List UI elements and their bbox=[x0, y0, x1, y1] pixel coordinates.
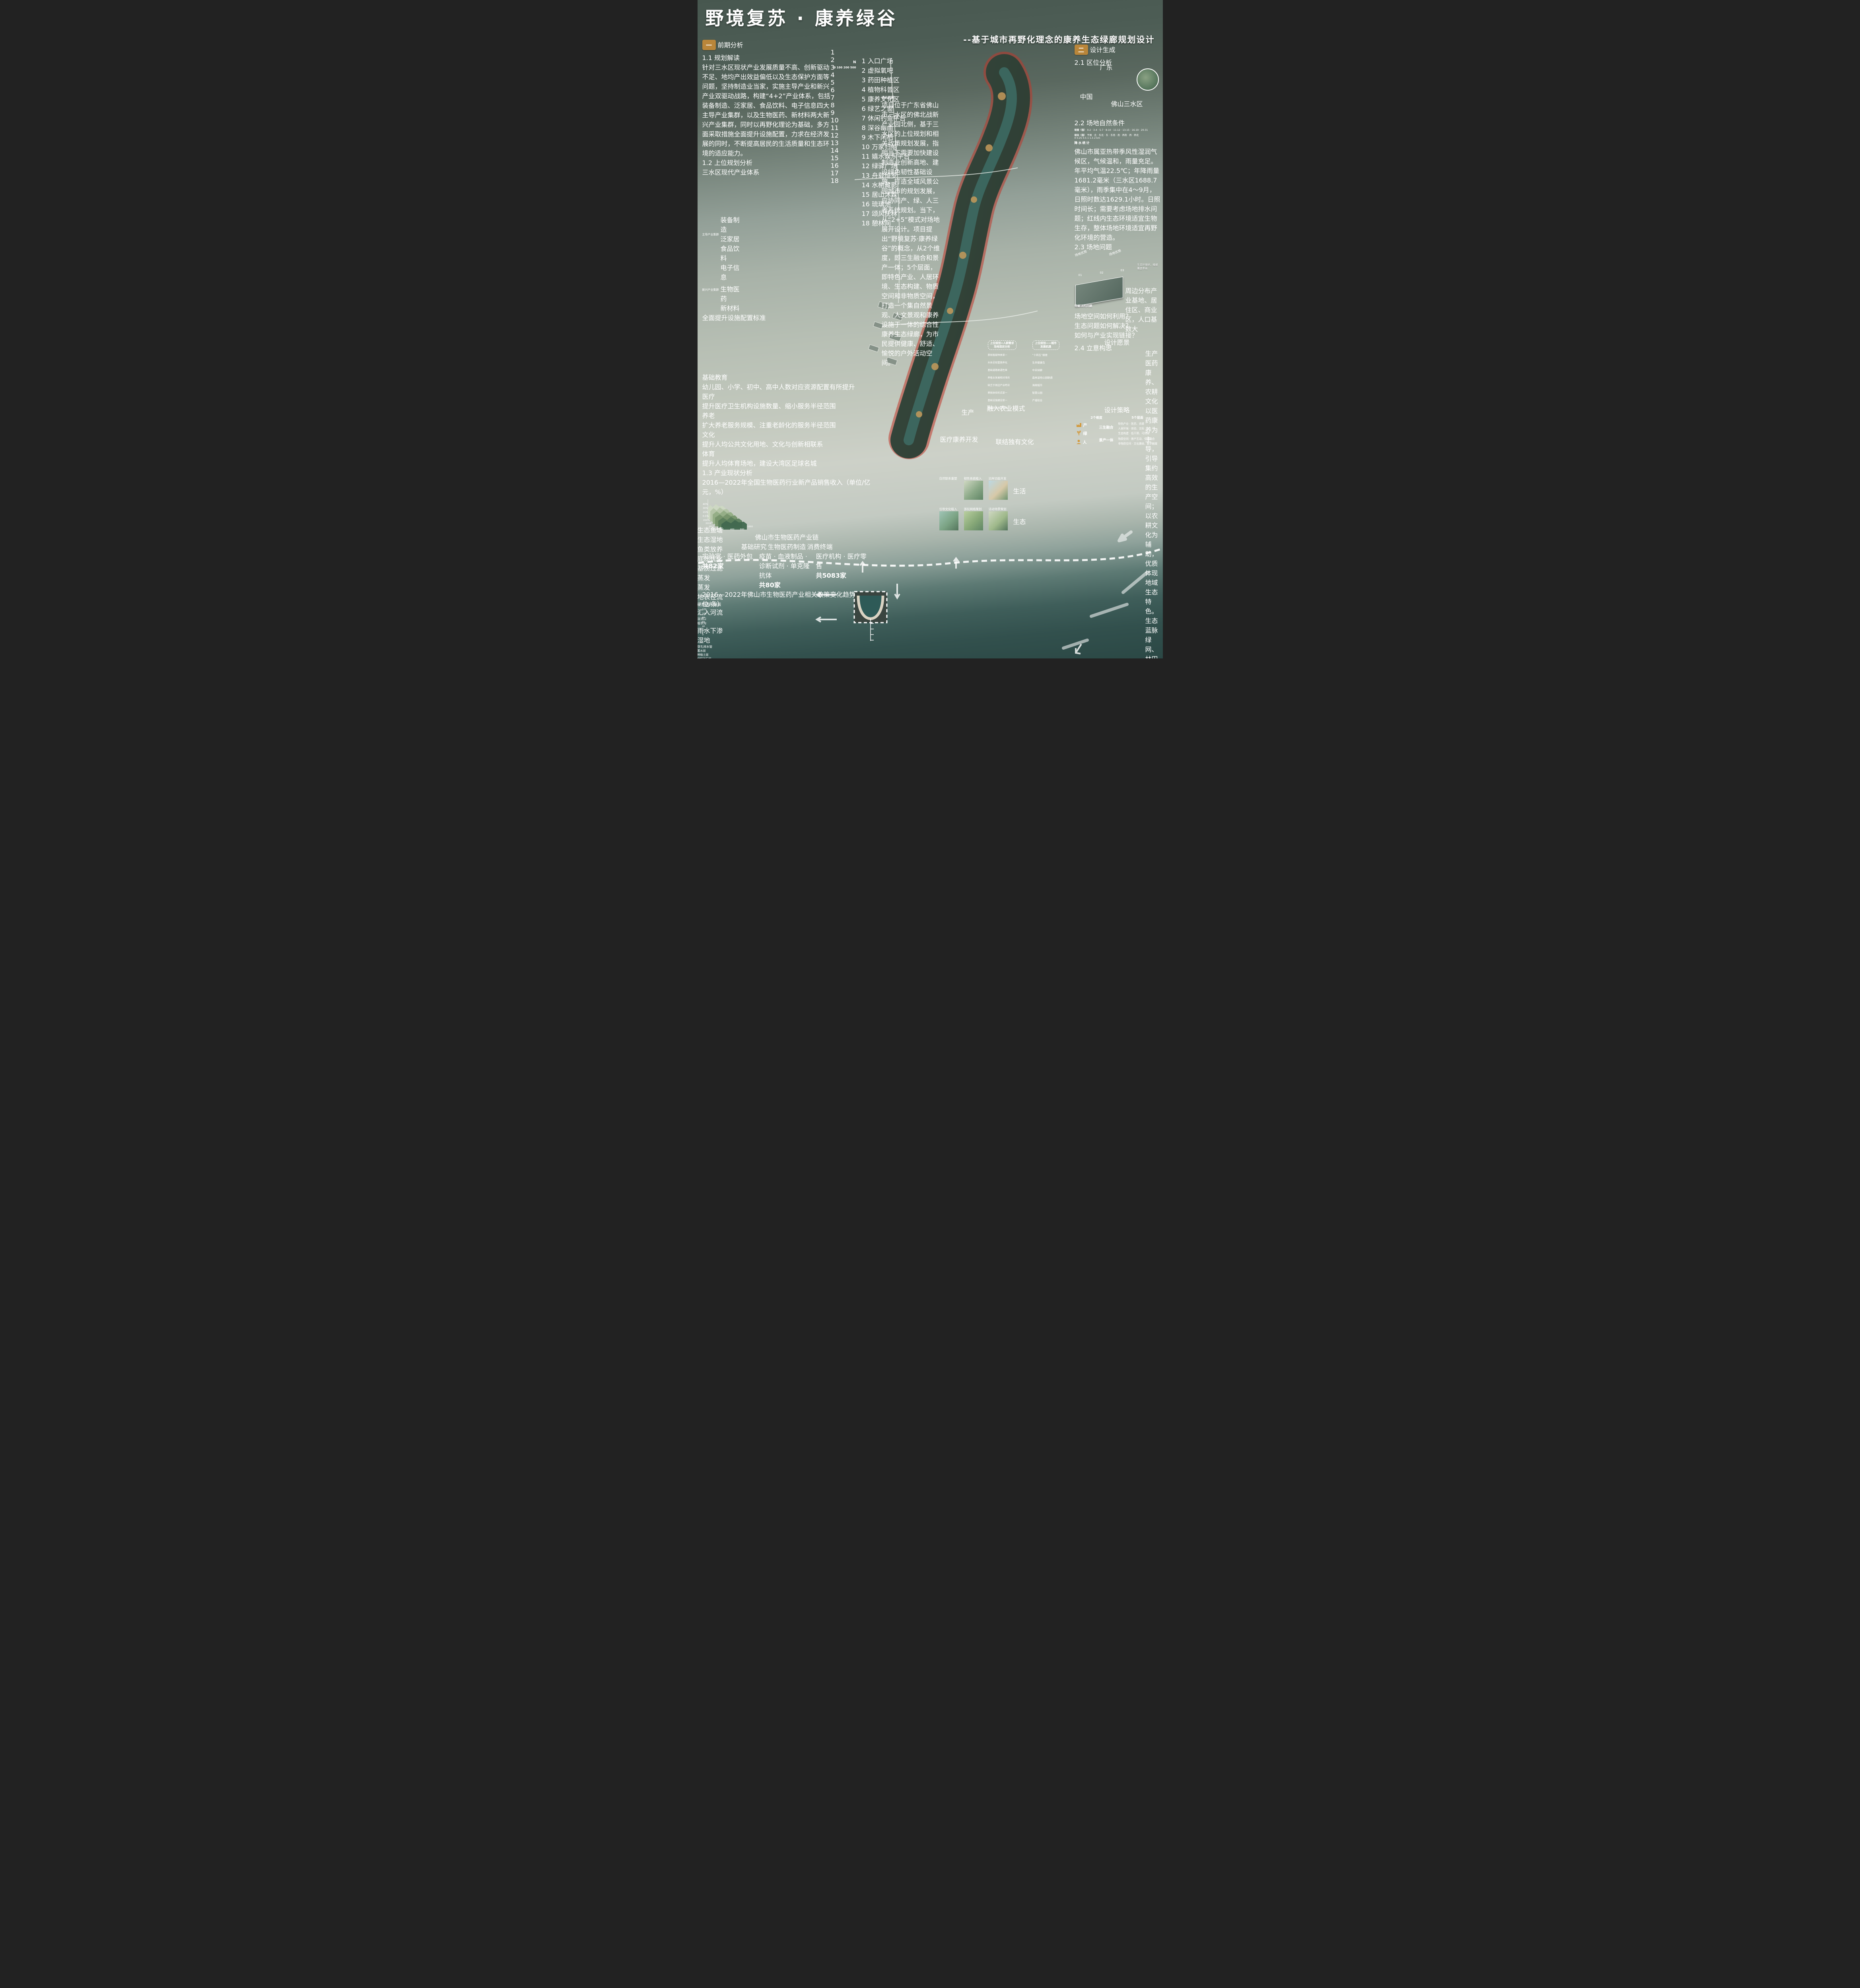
layer-item: 非物质空间 · 文化赓续、数字触媒 bbox=[1118, 441, 1158, 445]
vision-panel: 设计愿景 中央绿廊 生态绿心 生产、生态、生活相弥合 生产 医药康养、农耕文化 … bbox=[1073, 335, 1161, 399]
status-item: 水体呈现富营养化 bbox=[988, 357, 1016, 365]
layers-label: 5个层面 bbox=[1131, 415, 1143, 420]
life-label: 生活 bbox=[1013, 486, 1026, 495]
km-scale: 0 0.25 0.5 1 1.5 2 km bbox=[1075, 137, 1160, 140]
chart-ridge: 2016—2022年全国生物医药行业新产品销售收入（单位/亿元，%） 40%30… bbox=[702, 477, 872, 532]
chart-ridge-title: 2016—2022年全国生物医药行业新产品销售收入（单位/亿元，%） bbox=[702, 477, 872, 496]
cluster2-node: 新兴产业集群 bbox=[702, 288, 719, 309]
site-photo-03 bbox=[1118, 253, 1136, 269]
production-block-group: 生产 融入农业模式 医疗康养开发 联结独有文化 bbox=[936, 400, 1062, 472]
legend-number-badge: 12 bbox=[862, 162, 870, 170]
block-agriculture: 融入农业模式 bbox=[987, 403, 1025, 413]
map-legend-item: 1 入口广场 bbox=[862, 56, 985, 65]
industry-item: 食品饮料 bbox=[721, 243, 741, 262]
site-plan-tile bbox=[1075, 276, 1123, 306]
strategy-title: 设计策略 bbox=[1104, 406, 1129, 414]
legend-number-badge: 16 bbox=[862, 200, 870, 208]
svg-text:0.5%: 0.5% bbox=[703, 515, 709, 518]
section-1-header: 一 前期分析 bbox=[702, 40, 774, 50]
block-culture: 联结独有文化 bbox=[996, 437, 1034, 446]
rain-stat-label: 降水统计 bbox=[1075, 141, 1090, 145]
opportunity-items: “十四五”纲要 生命健康岛 中央绿廊 森林湿地公园联通 bbox=[1032, 350, 1059, 403]
status-item: 基础道路联通性差 bbox=[988, 365, 1016, 373]
legend-number-badge: 18 bbox=[862, 219, 870, 227]
legend-number-badge: 8 bbox=[862, 124, 866, 132]
layer-item: 人居环境 · 体验、交际 bbox=[1118, 426, 1158, 430]
block-medical: 医疗康养开发 bbox=[940, 434, 978, 444]
panel-title-line1: 上位规划+人群需求 bbox=[989, 342, 1015, 345]
panel-title-line1: 上位规划——城市 bbox=[1034, 342, 1058, 345]
panel-title-line2: 发展机遇 bbox=[1034, 345, 1058, 349]
section-1-number: 一 bbox=[702, 40, 716, 50]
layer-item: 物质空间 · 景产互动、空间融合 bbox=[1118, 437, 1158, 441]
photo-num-3: 03 bbox=[1121, 269, 1124, 272]
opportunity-item: 海绵城市 bbox=[1032, 380, 1059, 388]
production-label: 生产 bbox=[962, 407, 974, 417]
dims-label: 2个维度 bbox=[1090, 415, 1102, 420]
svg-text:30%: 30% bbox=[703, 507, 708, 510]
map-poi-marker: 1 bbox=[831, 49, 1074, 56]
map-legend-item: 4 植物科普区 bbox=[862, 84, 985, 94]
section-1-title: 前期分析 bbox=[718, 40, 774, 50]
status-item: 景观植被种类单一 bbox=[988, 350, 1016, 357]
dim1-layers: 特色产业 · 医药、农耕人居环境 · 体验、交际生态构建 · 低干预、可持续 bbox=[1118, 421, 1158, 436]
north-label: N bbox=[834, 60, 856, 64]
poster-root: 野境复苏 · 康养绿谷 --基于城市再野化理念的康养生态绿廊规划设计 一 前期分… bbox=[698, 0, 1163, 658]
legend-number-badge: 9 bbox=[862, 134, 866, 141]
heading-2-2: 2.2 场地自然条件 bbox=[1075, 118, 1160, 127]
svg-text:2021: 2021 bbox=[703, 519, 709, 522]
cluster1-items: 装备制造泛家居食品饮料电子信息 bbox=[721, 215, 741, 282]
section-2-number: 二 bbox=[1075, 45, 1088, 55]
guangdong-label: 广东 bbox=[1100, 62, 1113, 72]
vision-title: 设计愿景 bbox=[1104, 339, 1129, 346]
layer-item: 特色产业 · 医药、农耕 bbox=[1118, 421, 1158, 425]
opportunity-item: 智慧公园 bbox=[1032, 388, 1059, 395]
hydrology-section: 生态鱼塘 生态湿地 鱼类放养 底质优化 基质过滤 蒸发 蒸发 地表径流 硬质透水… bbox=[698, 525, 1163, 658]
opportunity-item: 森林湿地公园联通 bbox=[1032, 373, 1059, 380]
problem-label: 待解决的问题 bbox=[1075, 304, 1092, 308]
design-statement-title: 设计说明： bbox=[882, 95, 942, 100]
section-2-header: 二 设计生成 bbox=[1075, 45, 1154, 55]
photo-num-2: 02 bbox=[1100, 271, 1104, 274]
water-flow-arrows bbox=[698, 525, 1163, 658]
right-design-column: 二 设计生成 2.1 区位分析 中国 广东 佛山三水区 2.2 场地自然条件 坡… bbox=[1075, 45, 1160, 352]
map-scale-ticks: 0 100 200 500 bbox=[834, 66, 856, 69]
legend-number-badge: 10 bbox=[862, 143, 870, 151]
strategy-panel: 设计策略 2个维度 5个层面 产 绿 人 三生融合 景产一体 特色产业 · 医药… bbox=[1073, 402, 1161, 469]
site-photo-02 bbox=[1098, 256, 1115, 271]
cluster1-node: 主导产业集群 bbox=[702, 233, 719, 264]
legend-number-badge: 3 bbox=[862, 76, 866, 84]
status-item: 缺乏于周边产业呼应 bbox=[988, 380, 1016, 388]
aspect-legend: 坡向〈值〉 平面 · 北 · 东北 · 东 · 东南 · 南 · 西南 · 西 … bbox=[1075, 133, 1160, 137]
legend-number-badge: 13 bbox=[862, 172, 870, 179]
site-aerial-circle bbox=[1137, 68, 1159, 91]
layer-item: 生态构建 · 低干预、可持续 bbox=[1118, 431, 1158, 435]
legend-number-badge: 2 bbox=[862, 67, 866, 74]
status-item: 养殖业发展相对滞后 bbox=[988, 373, 1016, 380]
block-resilience: 韧性系统植入 bbox=[964, 476, 985, 505]
legend-number-badge: 5 bbox=[862, 95, 866, 103]
svg-text:15%: 15% bbox=[703, 511, 708, 514]
opportunity-item: 中央绿廊 bbox=[1032, 365, 1059, 373]
dim2-layers: 物质空间 · 景产互动、空间融合非物质空间 · 文化赓续、数字触媒 bbox=[1118, 436, 1158, 446]
photo-num-1: 01 bbox=[1079, 274, 1082, 277]
cluster2-items: 生物医药新材料 bbox=[721, 284, 741, 313]
china-label: 中国 bbox=[1080, 91, 1093, 101]
map-legend-item: 3 药田种植区 bbox=[862, 75, 985, 84]
text-1-1: 针对三水区现状产业发展质量不高、创新驱动不足、地均产出效益偏低以及生态保护方面等… bbox=[702, 62, 834, 157]
page-title: 野境复苏 · 康养绿谷 bbox=[706, 4, 898, 30]
legend-number-badge: 11 bbox=[862, 153, 870, 160]
eco-note: 生态环境好，植被覆盖率高 bbox=[1137, 263, 1160, 270]
slope-legend: 坡度〈值〉 0-2 · 3-4 · 5-7 · 8-10 · 11-12 · 1… bbox=[1075, 128, 1160, 132]
panel-title-line2: 场地现状分析 bbox=[989, 345, 1015, 349]
context-note: 周边分布产业基地、居住区、商业区，人口基数大 bbox=[1125, 285, 1160, 333]
industry-item: 新材料 bbox=[721, 303, 741, 313]
legend-number-badge: 1 bbox=[862, 57, 866, 65]
eco-label: 生态 bbox=[1013, 516, 1026, 526]
sanshui-label: 佛山三水区 bbox=[1111, 99, 1143, 108]
section-2-title: 设计生成 bbox=[1090, 45, 1154, 55]
legend-number-badge: 15 bbox=[862, 191, 870, 198]
status-item: 景观体验形式单一 bbox=[988, 388, 1016, 395]
natural-condition: 坡度〈值〉 0-2 · 3-4 · 5-7 · 8-10 · 11-12 · 1… bbox=[1075, 127, 1160, 242]
location-maps: 中国 广东 佛山三水区 bbox=[1075, 67, 1160, 118]
dim-jingchan: 景产一体 bbox=[1097, 437, 1116, 443]
block-riverside: 沿岸功能开发 bbox=[989, 476, 1010, 505]
plant-icon bbox=[1076, 431, 1082, 436]
legend-number-badge: 14 bbox=[862, 181, 870, 189]
industry-item: 装备制造 bbox=[721, 215, 741, 234]
legend-number-badge: 6 bbox=[862, 105, 866, 113]
opportunity-item: “十四五”纲要 bbox=[1032, 350, 1059, 357]
legend-number-badge: 17 bbox=[862, 210, 870, 217]
map-legend-item: 2 虚拟氧吧 bbox=[862, 65, 985, 75]
legend-number-badge: 7 bbox=[862, 115, 866, 122]
industry-item: 泛家居 bbox=[721, 234, 741, 243]
compass: N 0 100 200 500 bbox=[834, 60, 856, 69]
industry-item: 生物医药 bbox=[721, 284, 741, 303]
china-map-shape bbox=[1075, 72, 1103, 90]
site-issues-diagram: 场地优势 场地优势 01 02 03 生态环境好，植被覆盖率高 周边分布产业基地… bbox=[1075, 251, 1160, 311]
issue-notes: 周边分布产业基地、居住区、商业区，人口基数大 bbox=[1125, 285, 1160, 333]
heading-2-1: 2.1 区位分析 bbox=[1075, 57, 1160, 67]
site-photo-01 bbox=[1077, 258, 1094, 274]
design-statement-text: 项目位于广东省佛山市三水区的佛北战新产业园北侧，基于三水区的上位规划和相关政策规… bbox=[882, 100, 942, 367]
person-icon bbox=[1076, 439, 1081, 445]
opportunity-item: 生命健康岛 bbox=[1032, 357, 1059, 365]
legend-number-badge: 4 bbox=[862, 86, 866, 93]
dim-sansheng: 三生融合 bbox=[1097, 425, 1116, 430]
industry-item: 电子信息 bbox=[721, 262, 741, 282]
climate-caption: 佛山市属亚热带季风性湿润气候区，气候温和，雨量充足。年平均气温22.5℃；年降雨… bbox=[1075, 146, 1160, 242]
sanshui-map-shape bbox=[1114, 81, 1134, 97]
svg-text:40%: 40% bbox=[703, 503, 708, 506]
page-subtitle: --基于城市再野化理念的康养生态绿廊规划设计 bbox=[869, 33, 1155, 45]
design-statement: 设计说明： 项目位于广东省佛山市三水区的佛北战新产业园北侧，基于三水区的上位规划… bbox=[882, 95, 942, 367]
block-nature-reshape: 自然联系重塑 bbox=[939, 476, 961, 505]
factory-icon bbox=[1076, 423, 1082, 427]
